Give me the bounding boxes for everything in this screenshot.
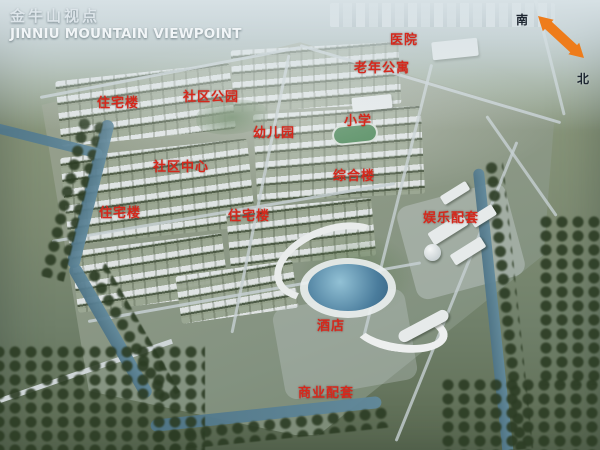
map-label-residential-1: 住宅楼 [97,92,139,111]
map-label-hospital: 医院 [390,29,418,48]
map-label-entertainment-suites: 娱乐配套 [423,207,479,226]
masterplan-aerial-rendering: 金牛山视点 JINNIU MOUNTAIN VIEWPOINT 南 北 医院 老… [0,0,600,450]
compass-north-label: 北 [577,70,589,87]
dome-building [424,244,441,261]
page-title-en: JINNIU MOUNTAIN VIEWPOINT [10,26,242,42]
map-label-residential-2: 住宅楼 [99,202,141,221]
atmospheric-haze [40,40,560,200]
map-label-senior-apartments: 老年公寓 [354,57,410,76]
compass-arrow-icon [528,4,592,68]
map-label-community-center: 社区中心 [153,156,209,175]
map-label-mixed-use-building: 综合楼 [333,165,375,184]
map-label-commercial-facilities: 商业配套 [298,382,354,401]
edge-trees [538,215,600,385]
title-block: 金牛山视点 JINNIU MOUNTAIN VIEWPOINT [10,5,242,42]
map-label-kindergarten: 幼儿园 [253,122,295,141]
map-label-residential-3: 住宅楼 [228,205,270,224]
map-label-hotel: 酒店 [317,315,345,334]
map-label-primary-school: 小学 [344,110,372,129]
compass-south-label: 南 [516,11,528,28]
map-label-community-park: 社区公园 [183,86,239,105]
page-title-zh: 金牛山视点 [10,5,242,26]
